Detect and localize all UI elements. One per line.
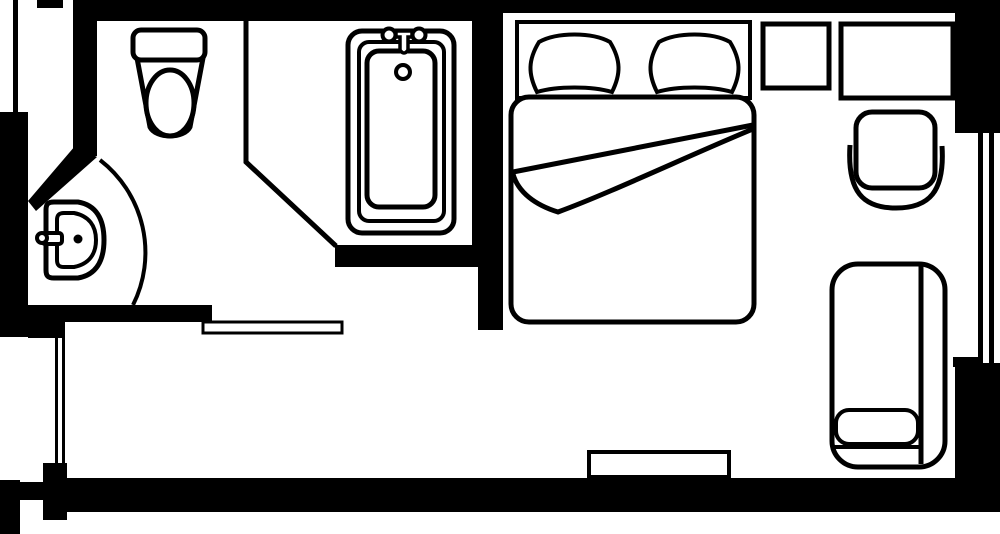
left-wall-jog — [28, 318, 65, 338]
left-window-line-inner — [62, 338, 65, 463]
left-wall-pier — [43, 463, 67, 520]
right-window-line-inner — [978, 127, 983, 364]
sink-drain-dot — [74, 235, 83, 244]
bathroom-bedroom-partition-upper — [472, 13, 503, 267]
chair-seat — [856, 112, 935, 188]
toilet-tub-partition-line — [246, 20, 336, 246]
bathtub-faucet-handle-right — [413, 29, 426, 42]
desk — [841, 24, 953, 98]
top-left-wall-stub — [37, 0, 63, 8]
bottom-wall — [65, 478, 965, 512]
floor-plan — [0, 0, 1000, 534]
chaise-pillow — [836, 410, 918, 444]
right-window-line-outer — [989, 127, 994, 364]
bottom-right-corner-wall — [955, 363, 1000, 512]
toilet-tank — [133, 30, 205, 60]
bathtub-drain — [396, 65, 410, 79]
floor-plan-canvas — [0, 0, 1000, 534]
bottom-left-wall-step — [20, 482, 45, 500]
bed-pillow-right — [650, 35, 738, 93]
sink-faucet-knob — [37, 233, 47, 243]
bathroom-door-swing-arc — [100, 160, 145, 305]
wall-below-bathtub — [335, 245, 503, 267]
bed-pillow-left — [530, 35, 618, 93]
top-left-window-line — [13, 0, 18, 118]
bathtub-spout — [396, 31, 412, 53]
left-window-line-outer — [55, 338, 58, 463]
bathtub-faucet-handle-left — [383, 29, 396, 42]
top-wall-bathroom-section — [77, 13, 503, 21]
toilet-bowl-inner — [146, 70, 194, 136]
top-wall — [77, 0, 1000, 13]
top-right-corner-wall — [955, 0, 1000, 133]
bottom-left-wall-stub — [0, 480, 20, 534]
bathroom-bedroom-partition-lower — [478, 267, 503, 330]
bathroom-door-threshold — [203, 322, 342, 333]
nightstand — [763, 24, 829, 88]
console-shelf — [589, 452, 729, 477]
left-wall-upper — [0, 112, 28, 337]
bathroom-left-wall — [73, 0, 97, 156]
